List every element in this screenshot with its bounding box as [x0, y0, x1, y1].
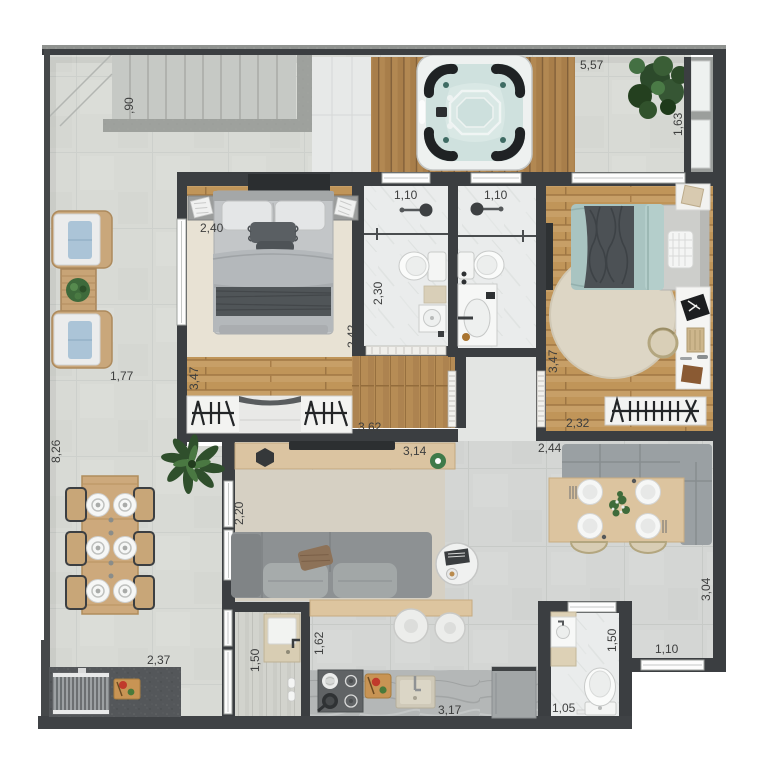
svg-text:1,10: 1,10: [394, 188, 418, 202]
svg-text:1,05: 1,05: [552, 701, 576, 715]
svg-text:3,04: 3,04: [699, 577, 713, 601]
svg-text:2,40: 2,40: [200, 221, 224, 235]
svg-text:3,17: 3,17: [438, 703, 462, 717]
svg-text:2,42: 2,42: [345, 324, 359, 348]
svg-text:1,50: 1,50: [605, 628, 619, 652]
svg-text:5,57: 5,57: [580, 58, 604, 72]
svg-text:2,44: 2,44: [538, 441, 562, 455]
svg-text:1,10: 1,10: [484, 188, 508, 202]
svg-text:3,62: 3,62: [358, 420, 382, 434]
svg-text:1,63: 1,63: [671, 112, 685, 136]
svg-text:1,77: 1,77: [110, 369, 134, 383]
svg-text:3,47: 3,47: [546, 349, 560, 373]
svg-text:2,20: 2,20: [232, 501, 246, 525]
svg-text:2,37: 2,37: [147, 653, 171, 667]
svg-text:1,10: 1,10: [655, 642, 679, 656]
svg-text:2,32: 2,32: [566, 416, 590, 430]
svg-text:3,14: 3,14: [403, 444, 427, 458]
svg-text:1,62: 1,62: [312, 631, 326, 655]
svg-text:3,47: 3,47: [187, 366, 201, 390]
svg-text:1,50: 1,50: [248, 648, 262, 672]
svg-text:8,26: 8,26: [49, 439, 63, 463]
svg-text:2,30: 2,30: [371, 281, 385, 305]
svg-text:,90: ,90: [122, 97, 136, 114]
